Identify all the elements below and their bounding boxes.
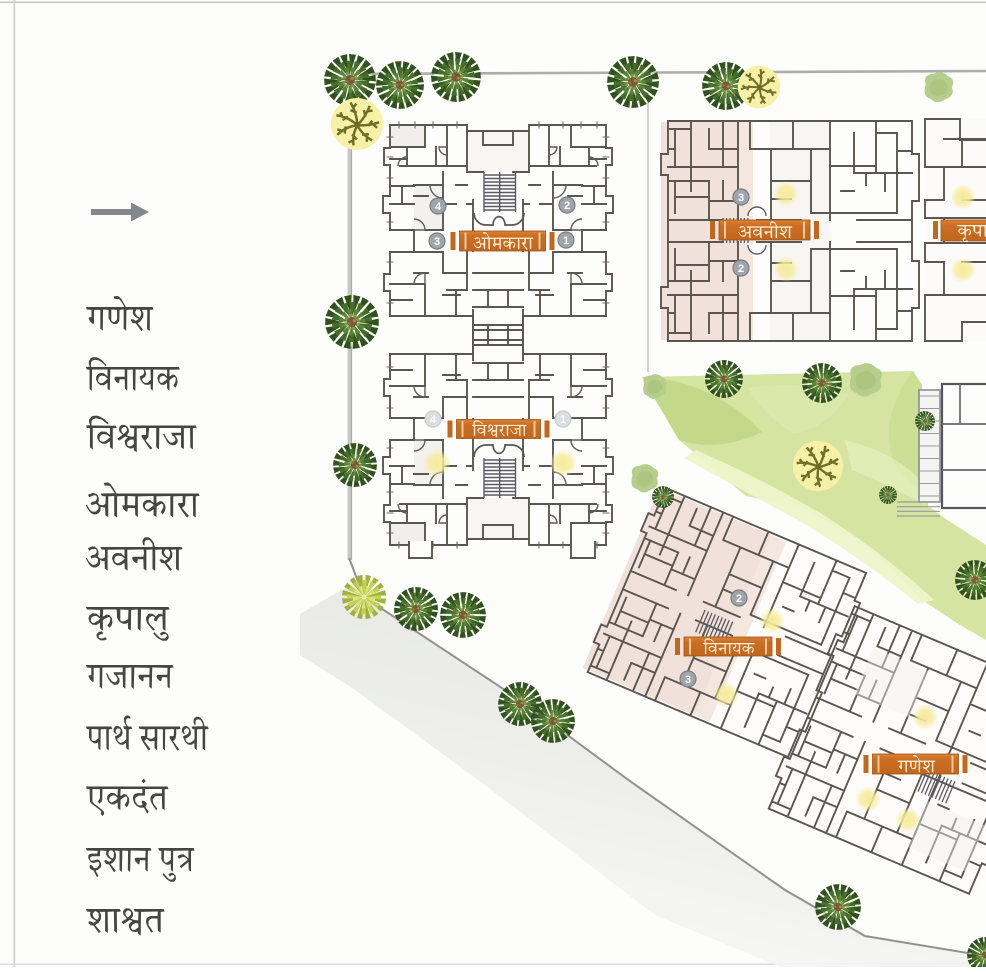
svg-text:1: 1 [563, 235, 569, 247]
svg-text:2: 2 [564, 200, 570, 212]
svg-text:4: 4 [435, 201, 442, 213]
svg-text:1: 1 [560, 414, 566, 426]
svg-text:2: 2 [738, 263, 744, 275]
svg-text:3: 3 [685, 674, 691, 686]
svg-text:4: 4 [430, 414, 437, 426]
svg-text:2: 2 [736, 593, 742, 605]
svg-text:3: 3 [434, 236, 440, 248]
svg-text:3: 3 [738, 192, 744, 204]
